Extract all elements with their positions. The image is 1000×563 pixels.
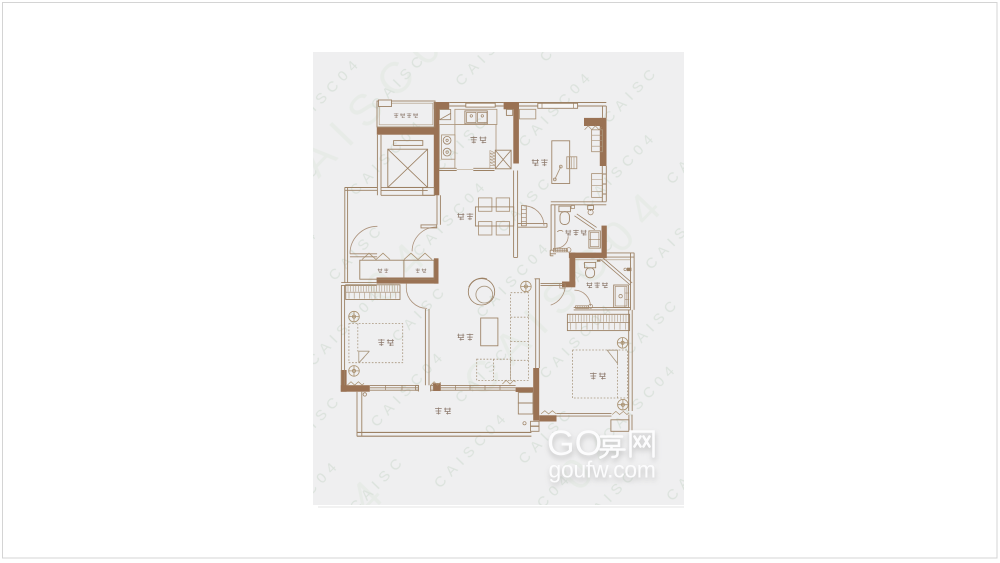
- svg-text:goufw.com: goufw.com: [549, 457, 656, 483]
